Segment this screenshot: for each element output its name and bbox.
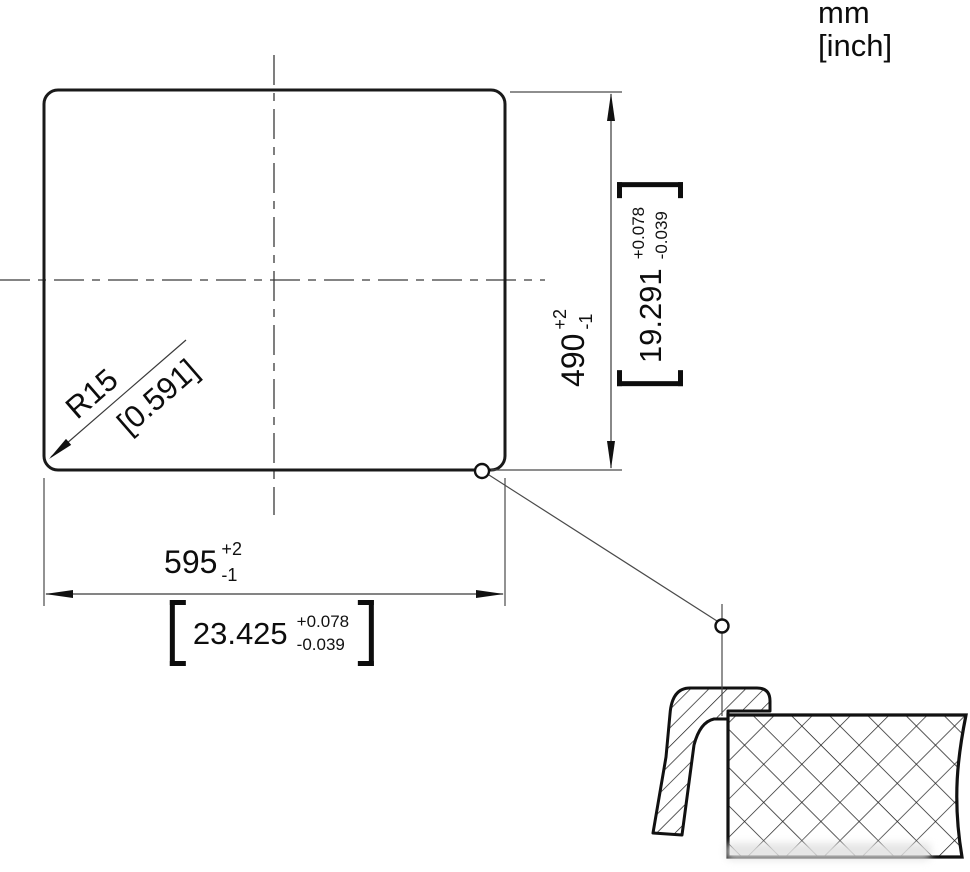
watermark-smudge	[726, 843, 931, 860]
units-inch-label: [inch]	[818, 30, 892, 63]
height-value-inch: 19.291	[635, 268, 666, 363]
left-bracket	[170, 600, 186, 666]
width-tolerance-inch: +0.078 -0.039	[297, 613, 349, 653]
height-dim-inch: 19.291 +0.078 -0.039	[617, 182, 683, 386]
right-bracket	[358, 600, 374, 666]
height-tolerance-mm: +2 -1	[551, 309, 595, 330]
centerlines	[0, 55, 545, 515]
width-dimension	[45, 590, 504, 598]
technical-drawing-page: mm [inch] 595 +2 -1 23.425 +0.078 -0.039…	[0, 0, 970, 872]
detail-point-section	[716, 620, 729, 633]
units-mm-label: mm	[818, 0, 892, 30]
left-bracket	[617, 370, 683, 386]
drawing-canvas	[0, 0, 970, 872]
height-dim-mm: 490 +2 -1	[551, 309, 595, 387]
width-tolerance-mm: +2 -1	[221, 540, 242, 584]
width-dim-inch: 23.425 +0.078 -0.039	[170, 600, 374, 666]
detail-leader	[489, 475, 722, 716]
height-tolerance-inch: +0.078 -0.039	[630, 207, 670, 259]
right-bracket	[617, 182, 683, 198]
extension-lines	[44, 92, 622, 606]
units-legend: mm [inch]	[818, 0, 892, 63]
detail-point-plan	[475, 464, 489, 478]
height-dimension	[607, 93, 615, 469]
width-dim-mm: 595 +2 -1	[164, 540, 242, 584]
width-value-mm: 595	[164, 546, 217, 578]
section-countertop	[728, 715, 966, 857]
height-value-mm: 490	[557, 334, 589, 387]
width-value-inch: 23.425	[193, 618, 288, 649]
